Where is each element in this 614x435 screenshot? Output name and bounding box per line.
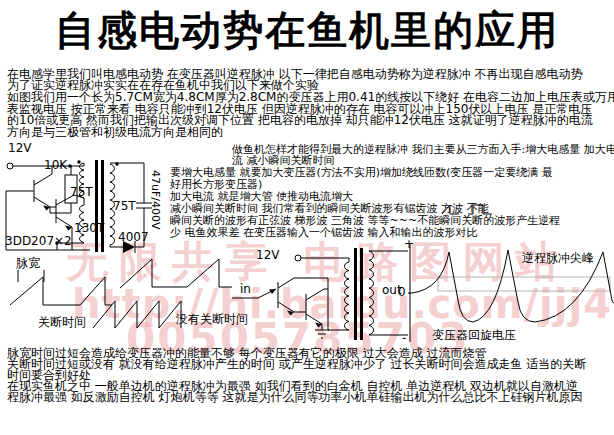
transformer-core — [360, 248, 363, 340]
primary-winding — [345, 262, 350, 330]
transformer-core — [354, 248, 357, 340]
axis-minus-label: - — [402, 332, 406, 344]
ground-symbol — [315, 330, 329, 338]
right-col-line: 减小瞬间关断时间 我们常看到的瞬间关断波形有锯齿波 方波 不能 — [170, 203, 489, 214]
transistor-symbol — [278, 278, 328, 312]
pulse-width-ticks — [18, 270, 44, 282]
supply-voltage-label: 12V — [8, 142, 31, 154]
supply-voltage-label: 12V — [256, 249, 279, 261]
axis-plus-label: + — [404, 238, 414, 250]
off-time-label: 关断时间 — [38, 316, 86, 328]
axis-zero-label: 0 — [398, 286, 406, 298]
supply-terminal — [295, 255, 301, 261]
page-title: 自感电动势在鱼机里的应用 — [0, 7, 614, 53]
sawtooth-with-offtime — [10, 277, 112, 305]
resistor-label: 10K — [44, 159, 67, 171]
transformer-core — [101, 160, 104, 252]
right-col-line: 好用长方形变压器) — [170, 179, 262, 190]
input-label: in — [240, 283, 251, 295]
right-col-line: 流 减小瞬间关断时间 — [232, 155, 335, 166]
diode-label: 4007 — [118, 231, 149, 243]
transformer-swing-label: 变压器回旋电压 — [432, 329, 516, 341]
primary-bottom-label: 130T — [74, 222, 104, 234]
flyback-spike-label: 逆程脉冲尖峰 — [522, 252, 594, 264]
supply-terminal — [7, 163, 13, 169]
transistor-symbol — [6, 166, 56, 207]
intro-line: 方向是与三极管和初级电流方向是相同的 — [7, 126, 223, 138]
output-axis — [408, 243, 412, 342]
right-col-line: 要增大电感量 就要加大变压器(方法不实用)增加绕线匝数(变压器一定要绕满 最 — [170, 167, 553, 178]
input-wire — [232, 289, 276, 298]
transistor-type-label: 3DD207×2 — [5, 235, 72, 247]
transformer-core — [95, 160, 98, 252]
secondary-winding — [369, 251, 374, 335]
bottom-line: 程脉冲最强 如反激励自控机 灯炮机等等 这就是为什么同等功率小机单硅输出机为什么… — [7, 391, 582, 403]
right-col-line: 少 电鱼效果差 在变压器输入一个锯齿波 输入和输出的波形对比 — [170, 227, 478, 238]
document-page: 无限共享 电路图网站 http://hi.baidu.com/jjj4 0050… — [0, 0, 614, 435]
secondary-label: 75T — [113, 200, 136, 212]
capacitor-label: 47uF/400V — [150, 170, 161, 244]
polarity-dot — [77, 160, 80, 163]
right-col-line: 瞬间关断的波形有正弦波 梯形波 三角波 等等~~~不能瞬间关断的波形产生逆程 — [170, 215, 560, 226]
right-col-line: 加大电流 就是增大管 使推动电流增大 — [170, 191, 353, 202]
pulse-width-label: 脉宽 — [16, 257, 40, 269]
primary-top-label: 75T — [70, 186, 93, 198]
sawtooth-with-offtime — [120, 259, 232, 288]
bottom-line: 关断时间过短或没有 就没有给逆程脉冲产生的时间 或产生逆程脉冲少了 过长关断时间… — [7, 358, 586, 370]
